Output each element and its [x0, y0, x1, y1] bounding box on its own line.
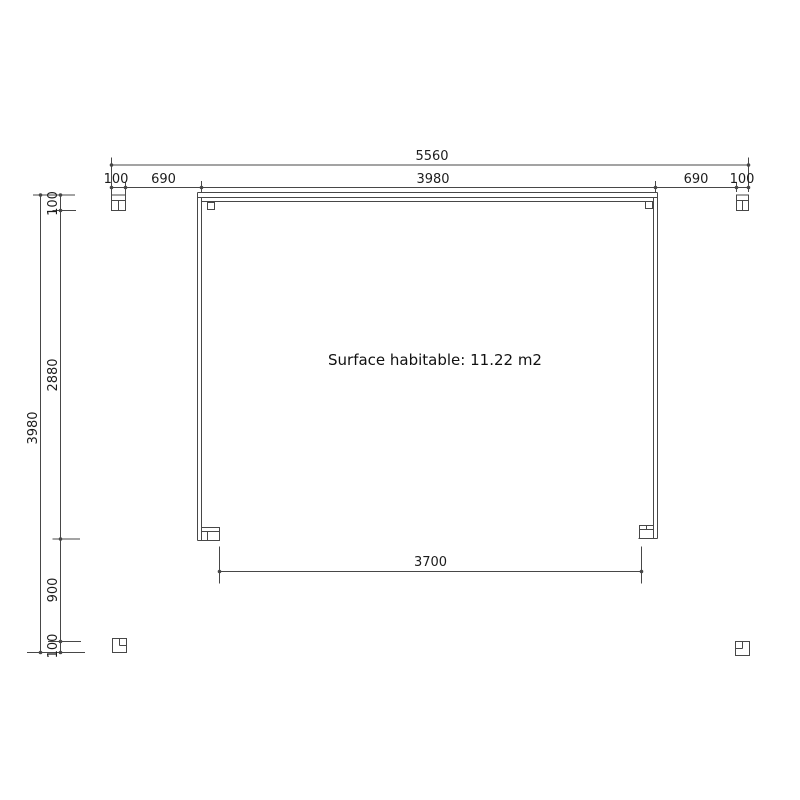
dimension-label-top-seg-100-left: 100 [104, 172, 129, 187]
dimension-top-overall: 5560 [110, 149, 751, 167]
dimension-label-top-seg-690-right: 690 [684, 172, 709, 187]
floor-plan-drawing: 5560 100 690 3980 690 100 3980 [0, 0, 800, 800]
post-outline [208, 203, 215, 210]
dimension-label-bottom-inner: 3700 [414, 555, 447, 570]
post-outline [646, 202, 653, 209]
dimension-dot [59, 537, 63, 541]
dimension-label-left-seg-100-top: 100 [46, 191, 61, 216]
floor-plan-canvas: 5560 100 690 3980 690 100 3980 [0, 0, 800, 800]
dimension-label-top-seg-690-left: 690 [151, 172, 176, 187]
dimension-label-left-seg-2880: 2880 [46, 358, 61, 391]
dimension-label-top-seg-100-right: 100 [730, 172, 755, 187]
post-inner-top-right [646, 202, 653, 209]
dimension-dot [654, 186, 658, 190]
post-bottom-left [113, 639, 127, 653]
dimension-label-left-seg-900: 900 [46, 578, 61, 603]
dimension-dot [218, 570, 222, 574]
dimension-dot [200, 186, 204, 190]
post-top-left [112, 195, 126, 211]
post-inner-top-left [208, 203, 215, 210]
dimension-bottom-inner: 3700 [218, 547, 644, 584]
dimension-label-left-seg-100-bottom: 100 [46, 634, 61, 659]
post-inner-bottom-right [640, 526, 654, 539]
surface-area-label: Surface habitable: 11.22 m2 [328, 351, 542, 369]
dimension-left-overall: 3980 [26, 193, 42, 654]
dimension-label-top-seg-3980: 3980 [416, 172, 449, 187]
post-inner-bottom-left [202, 528, 220, 541]
post-bottom-right [736, 642, 750, 656]
dimension-label-left-overall: 3980 [26, 411, 41, 444]
post-top-right [737, 195, 749, 211]
post-outline [202, 528, 220, 541]
dimension-dot [640, 570, 644, 574]
dimension-label-top-overall: 5560 [415, 149, 448, 164]
